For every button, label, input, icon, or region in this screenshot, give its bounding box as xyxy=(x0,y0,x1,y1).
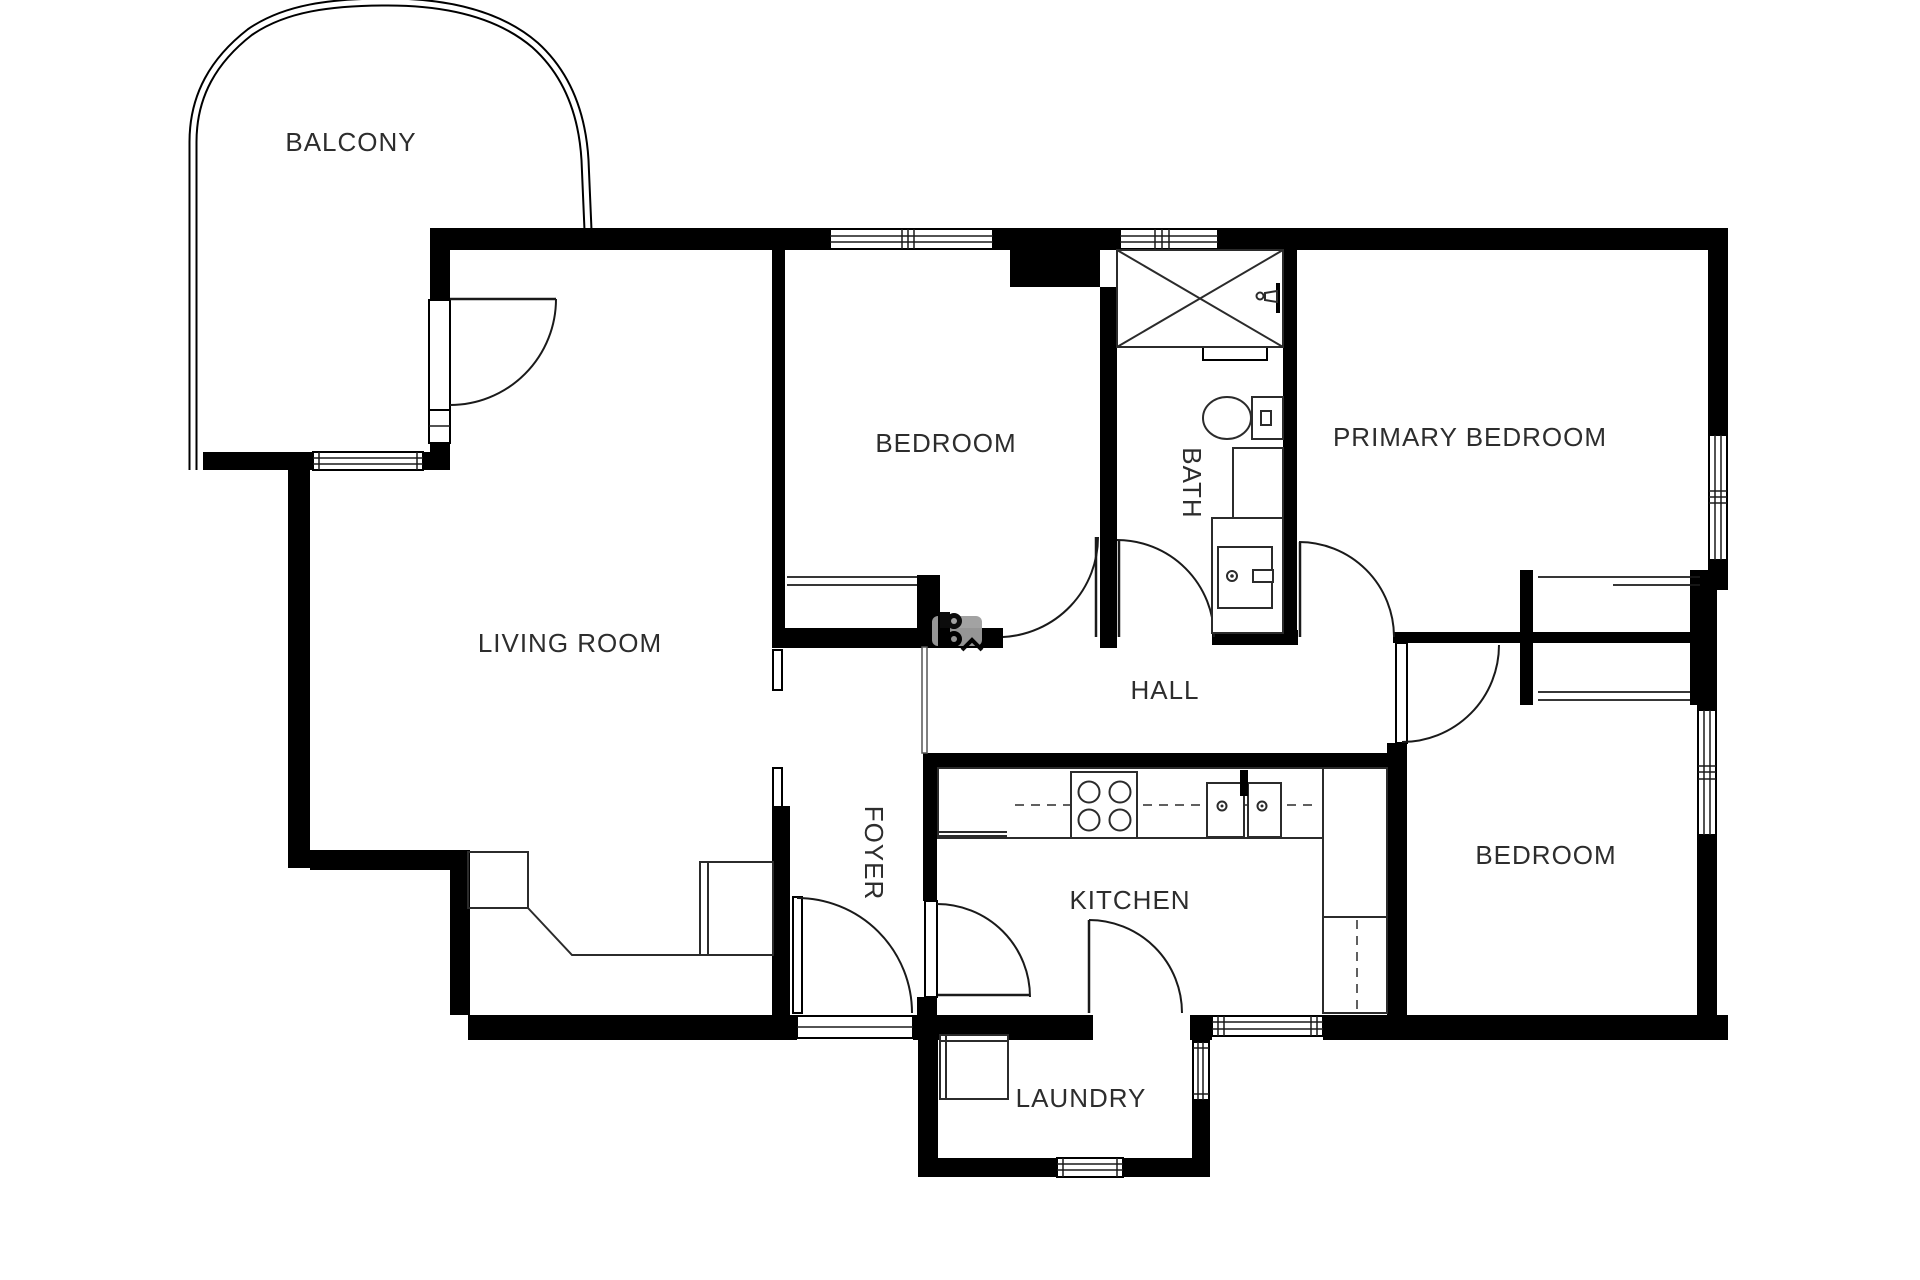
door-bedroom1 xyxy=(1003,537,1098,637)
shower xyxy=(1117,250,1283,347)
window-bedroom2 xyxy=(1698,710,1716,835)
stove xyxy=(1071,772,1137,838)
thin-partitions xyxy=(773,647,927,807)
door-balcony xyxy=(429,299,556,410)
bath-fixtures xyxy=(1117,250,1283,633)
window-bedroom1 xyxy=(830,229,993,249)
room-label-laundry: LAUNDRY xyxy=(1016,1083,1147,1113)
window-bath xyxy=(1120,229,1218,249)
washer xyxy=(940,1035,1008,1099)
window-balcony-sidelight xyxy=(429,410,450,443)
door-kitchen xyxy=(925,901,1030,997)
faucet xyxy=(1240,770,1248,796)
watermark-logo xyxy=(932,612,982,650)
refrigerator xyxy=(1323,917,1387,1013)
window-laundry-south xyxy=(1057,1158,1123,1177)
entry-threshold xyxy=(797,1016,913,1038)
kitchen-sink xyxy=(1207,770,1281,837)
room-label-hall: HALL xyxy=(1130,675,1199,705)
closet-bedroom2 xyxy=(1538,692,1690,700)
window-kitchen xyxy=(1212,1016,1323,1036)
closet-bedroom1 xyxy=(787,577,917,585)
door-primary-bedroom xyxy=(1299,542,1394,637)
living-room-builtin xyxy=(468,852,773,955)
room-label-bedroom2: BEDROOM xyxy=(1475,840,1616,870)
window-primary-bedroom xyxy=(1709,435,1727,560)
closet-primary xyxy=(1538,577,1700,585)
door-bath xyxy=(1117,540,1214,637)
door-bedroom2 xyxy=(1396,643,1499,743)
door-entry xyxy=(793,897,912,1013)
room-label-primary-bedroom: PRIMARY BEDROOM xyxy=(1333,422,1607,452)
shower-ledge xyxy=(1203,347,1267,360)
window-laundry-east xyxy=(1193,1042,1209,1100)
kitchen-counter-right xyxy=(1323,768,1387,917)
toilet xyxy=(1203,397,1283,439)
room-label-kitchen: KITCHEN xyxy=(1069,885,1190,915)
room-label-foyer: FOYER xyxy=(859,806,889,901)
floor-plan-drawing: BALCONY LIVING ROOM BEDROOM BATH PRIMARY… xyxy=(0,0,1920,1280)
room-label-living-room: LIVING ROOM xyxy=(478,628,662,658)
room-label-balcony: BALCONY xyxy=(285,127,416,157)
door-laundry xyxy=(1089,920,1182,1013)
room-label-bath: BATH xyxy=(1177,447,1207,518)
floor-plan-page: BALCONY LIVING ROOM BEDROOM BATH PRIMARY… xyxy=(0,0,1920,1280)
room-label-bedroom1: BEDROOM xyxy=(875,428,1016,458)
window-living-room xyxy=(313,452,423,470)
bath-vanity xyxy=(1212,448,1283,633)
